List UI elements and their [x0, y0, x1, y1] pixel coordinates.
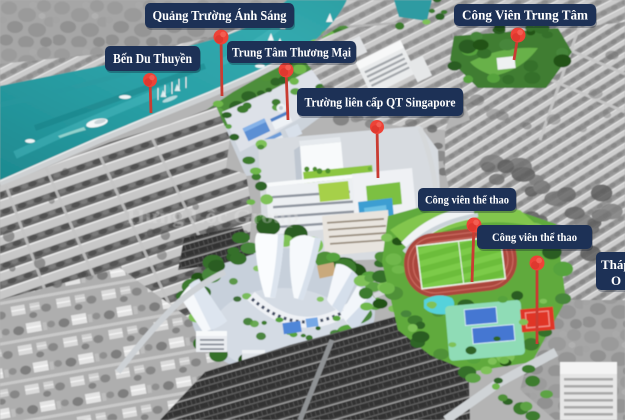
svg-text:Hưng Lộc Group: Hưng Lộc Group: [127, 206, 299, 228]
svg-text:Công viên thể thao: Công viên thể thao: [425, 193, 509, 207]
svg-text:Công Viên Trung Tâm: Công Viên Trung Tâm: [462, 8, 589, 23]
svg-text:Quảng Trường Ánh Sáng: Quảng Trường Ánh Sáng: [153, 8, 287, 23]
svg-text:Trung Tâm Thương Mại: Trung Tâm Thương Mại: [232, 45, 351, 60]
svg-text:Trường liên cấp QT Singapore: Trường liên cấp QT Singapore: [305, 95, 456, 110]
svg-text:Bến Du Thuyền: Bến Du Thuyền: [113, 51, 192, 66]
svg-text:Công viên thể thao: Công viên thể thao: [492, 230, 577, 244]
svg-text:O: O: [611, 273, 621, 288]
svg-text:Tháp: Tháp: [601, 257, 625, 272]
